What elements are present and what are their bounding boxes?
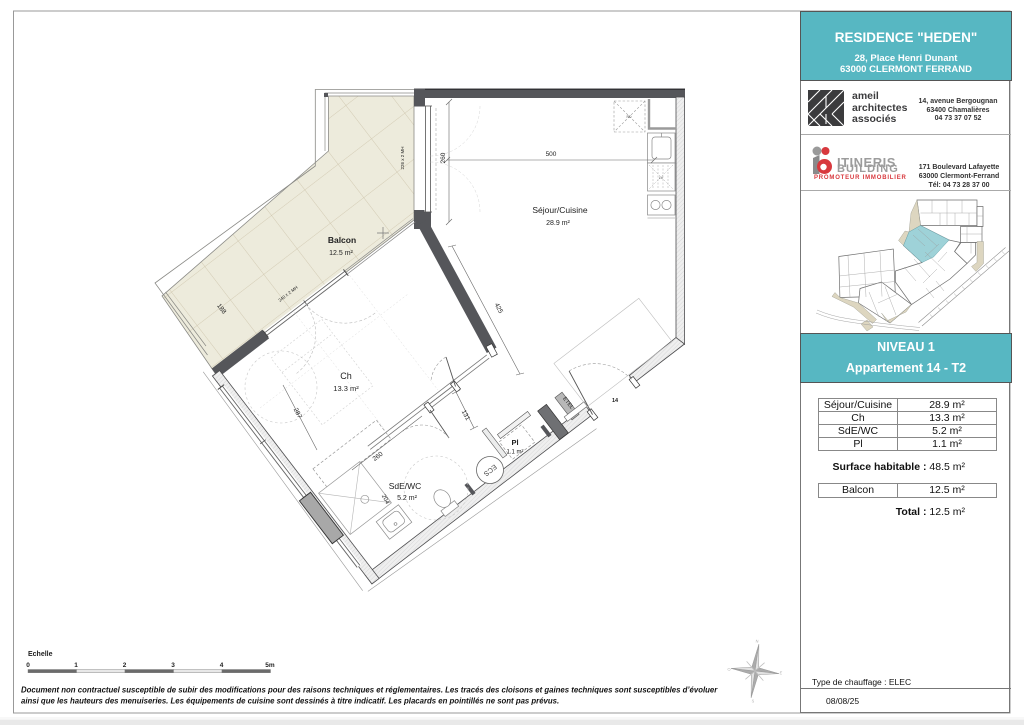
svg-text:Document non contractuel susce: Document non contractuel susceptible de …	[21, 686, 718, 695]
svg-text:28.9 m²: 28.9 m²	[546, 220, 570, 227]
svg-text:0: 0	[26, 662, 30, 669]
svg-text:Pl: Pl	[511, 438, 518, 447]
svg-text:E: E	[779, 670, 782, 675]
svg-text:500: 500	[546, 151, 557, 158]
svg-text:4: 4	[220, 662, 224, 669]
svg-text:226 x 2 MH: 226 x 2 MH	[400, 146, 405, 169]
svg-text:N: N	[755, 638, 758, 643]
svg-text:LV: LV	[659, 176, 664, 180]
svg-text:13.3 m²: 13.3 m²	[333, 384, 359, 393]
svg-text:O: O	[727, 667, 730, 672]
svg-text:Echelle: Echelle	[28, 651, 53, 658]
svg-text:S: S	[751, 698, 754, 703]
svg-text:260: 260	[440, 152, 447, 163]
svg-text:131: 131	[460, 409, 471, 422]
svg-text:Balcon: Balcon	[328, 235, 356, 245]
svg-text:1.1 m²: 1.1 m²	[506, 450, 523, 456]
svg-text:ainsi que les hauteurs des men: ainsi que les hauteurs des menuiseries. …	[21, 697, 559, 706]
svg-text:Séjour/Cuisine: Séjour/Cuisine	[532, 205, 588, 215]
svg-text:1: 1	[74, 662, 78, 669]
svg-text:12.5 m²: 12.5 m²	[329, 250, 353, 257]
svg-text:5.2 m²: 5.2 m²	[397, 495, 418, 502]
svg-text:RD: RD	[626, 115, 632, 119]
svg-text:2: 2	[123, 662, 127, 669]
svg-text:425: 425	[493, 302, 504, 315]
svg-text:3: 3	[171, 662, 175, 669]
svg-text:14: 14	[612, 398, 619, 404]
svg-text:5m: 5m	[265, 662, 275, 669]
svg-text:Ch: Ch	[340, 371, 352, 381]
svg-text:SdE/WC: SdE/WC	[389, 481, 422, 491]
svg-text:287: 287	[292, 407, 303, 420]
